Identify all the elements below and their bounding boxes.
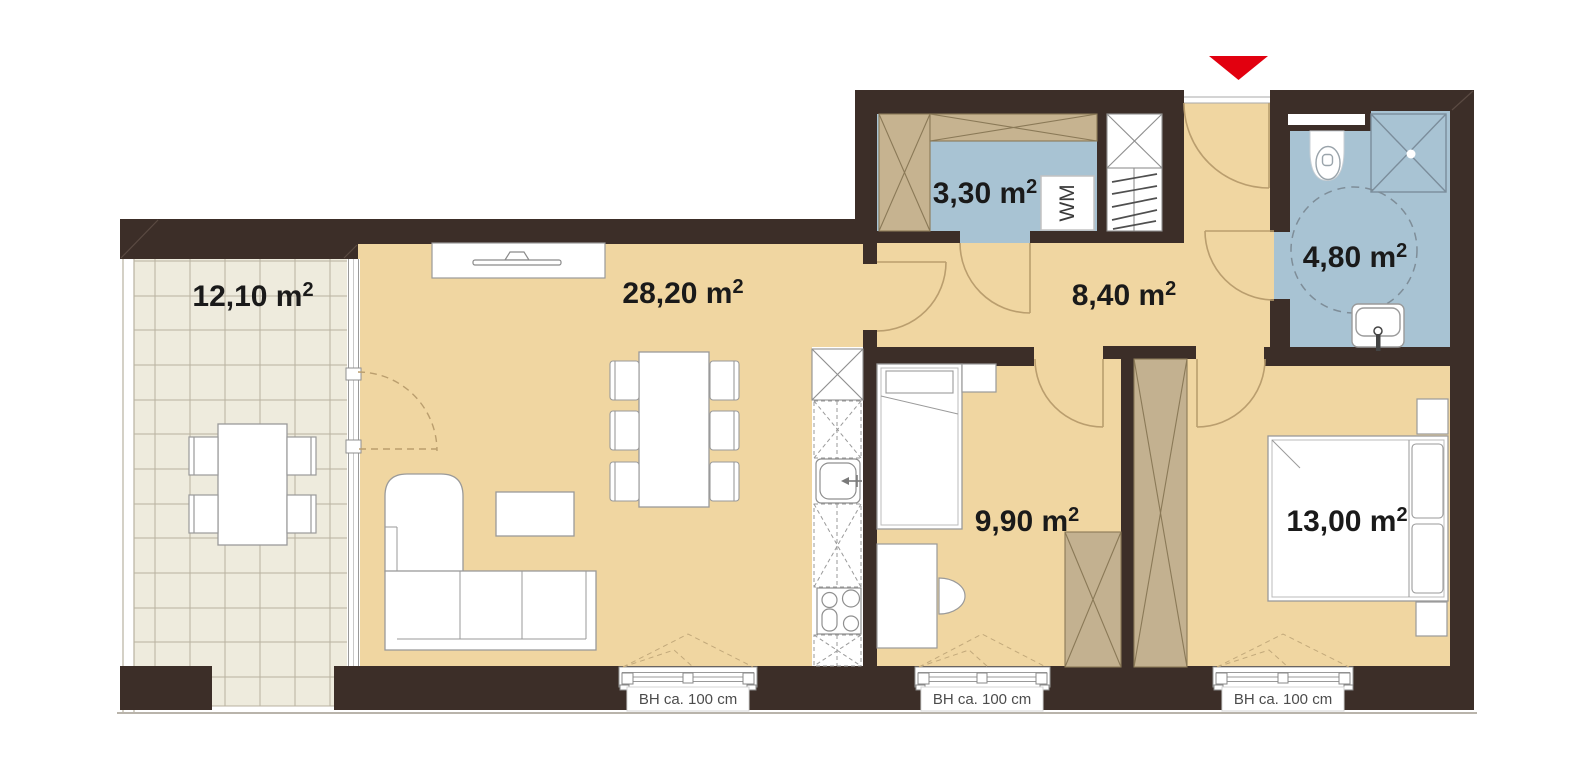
svg-text:4,80 m2: 4,80 m2 bbox=[1303, 240, 1408, 274]
svg-text:13,00 m2: 13,00 m2 bbox=[1286, 504, 1407, 538]
svg-text:BH ca. 100 cm: BH ca. 100 cm bbox=[1234, 691, 1332, 708]
svg-text:12,10 m2: 12,10 m2 bbox=[192, 279, 313, 313]
svg-text:3,30 m2: 3,30 m2 bbox=[933, 176, 1038, 210]
svg-text:28,20 m2: 28,20 m2 bbox=[622, 276, 743, 310]
svg-text:WM: WM bbox=[1056, 184, 1079, 221]
svg-text:BH ca. 100 cm: BH ca. 100 cm bbox=[639, 691, 737, 708]
svg-text:9,90 m2: 9,90 m2 bbox=[975, 504, 1080, 538]
svg-text:8,40 m2: 8,40 m2 bbox=[1072, 278, 1177, 312]
svg-text:BH ca. 100 cm: BH ca. 100 cm bbox=[933, 691, 1031, 708]
